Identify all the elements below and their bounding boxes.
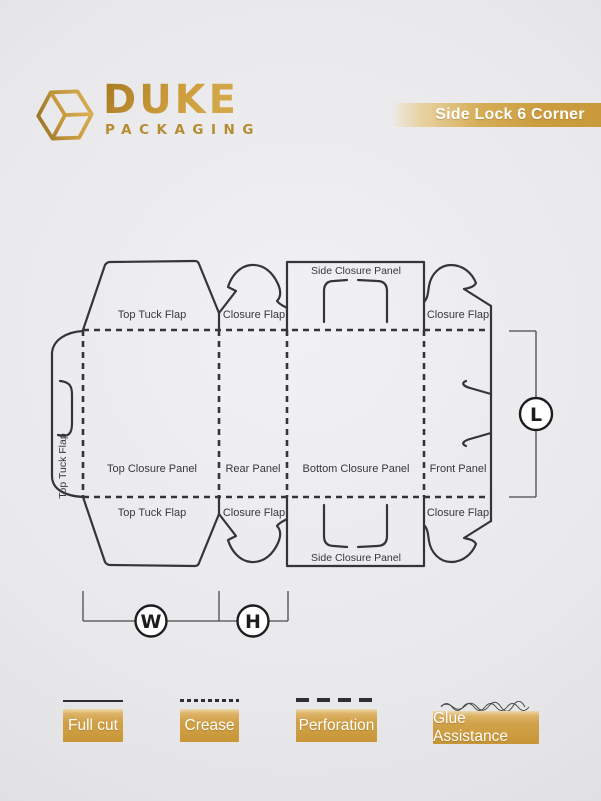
crease-line-sample — [180, 699, 239, 702]
side-panel-bottom-lock-cut-left — [324, 505, 347, 547]
legend-item-crease: Crease — [180, 698, 239, 742]
closure-flap-rear-top-outline — [219, 265, 287, 313]
label-side-closure-panel-top: Side Closure Panel — [311, 265, 401, 277]
crease-label: Crease — [180, 709, 239, 742]
front-panel-hook-cut-top — [463, 381, 491, 394]
label-top-tuck-flap-top: Top Tuck Flap — [118, 309, 186, 321]
legend-item-perforation: Perforation — [296, 698, 377, 742]
side-panel-top-lock-cut-right — [358, 280, 387, 322]
left-tuck-flap-lock-cut — [58, 381, 72, 436]
glue-assistance-line-sample — [433, 698, 539, 708]
label-bottom-closure-panel: Bottom Closure Panel — [303, 463, 410, 475]
label-top-tuck-flap-left: Top Tuck Flap — [57, 433, 69, 499]
closure-flap-front-bottom-outline — [424, 521, 491, 562]
height-letter: H — [245, 611, 261, 633]
label-side-closure-panel-bottom: Side Closure Panel — [311, 552, 401, 564]
full-cut-label: Full cut — [63, 709, 123, 742]
label-closure-flap-rear-bottom: Closure Flap — [223, 507, 285, 519]
side-panel-top-lock-cut-left — [324, 280, 347, 322]
label-top-tuck-flap-bottom: Top Tuck Flap — [118, 507, 186, 519]
length-letter: L — [530, 404, 542, 426]
closure-flap-front-top-outline — [424, 265, 491, 306]
closure-flap-rear-bottom-outline — [219, 514, 287, 562]
label-rear-panel: Rear Panel — [225, 463, 280, 475]
perforation-label: Perforation — [296, 709, 377, 742]
perforation-line-sample — [296, 698, 377, 702]
cut-lines — [52, 261, 491, 566]
width-letter: W — [141, 611, 162, 633]
label-closure-flap-front-bottom: Closure Flap — [427, 507, 489, 519]
legend-item-full-cut: Full cut — [63, 698, 123, 742]
label-closure-flap-front-top: Closure Flap — [427, 309, 489, 321]
label-closure-flap-rear-top: Closure Flap — [223, 309, 285, 321]
full-cut-line-sample — [63, 700, 123, 702]
dieline-diagram: L W H Top Tuck Flap Closure Flap Side Cl… — [0, 0, 601, 801]
side-panel-bottom-lock-cut-right — [358, 505, 387, 547]
dimension-marker-width-height: W H — [83, 591, 288, 637]
page: DUKE PACKAGING Side Lock 6 Corner — [0, 0, 601, 801]
glue-assistance-label: Glue Assistance — [433, 711, 539, 744]
label-top-closure-panel: Top Closure Panel — [107, 463, 197, 475]
legend-item-glue-assistance: Glue Assistance — [433, 698, 539, 744]
front-panel-hook-cut-bottom — [463, 433, 491, 446]
label-front-panel: Front Panel — [430, 463, 487, 475]
dimension-marker-length: L — [509, 331, 552, 497]
